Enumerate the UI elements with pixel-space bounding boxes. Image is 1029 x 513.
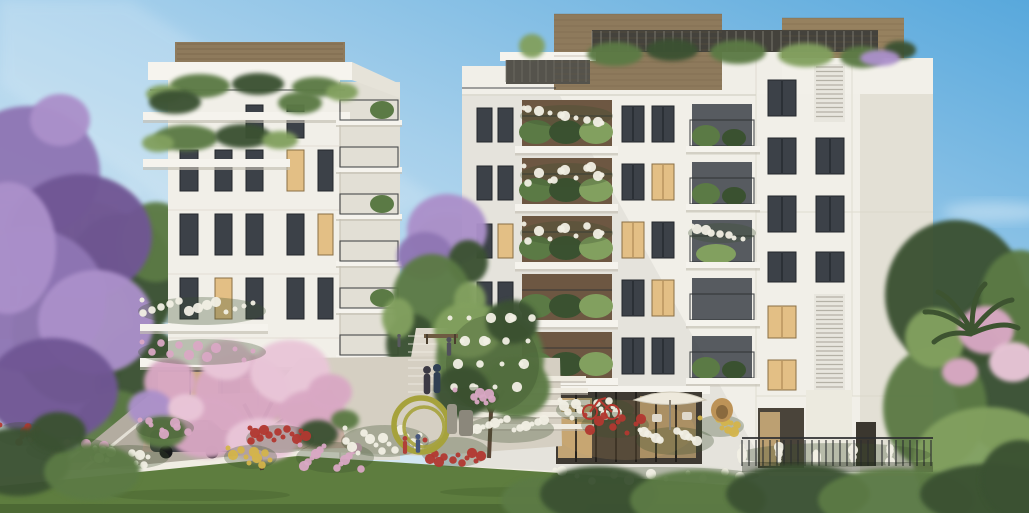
balcony-plant bbox=[579, 294, 613, 318]
tree-canopy bbox=[149, 90, 201, 114]
flower bbox=[391, 446, 399, 454]
flower bbox=[698, 416, 703, 421]
tree-canopy bbox=[646, 39, 698, 61]
flower bbox=[609, 423, 617, 431]
balcony-slab bbox=[686, 146, 760, 152]
window bbox=[498, 224, 513, 258]
flower bbox=[564, 408, 572, 416]
flower bbox=[600, 121, 605, 126]
window bbox=[318, 214, 333, 255]
flower bbox=[423, 438, 428, 443]
balcony-slab bbox=[515, 204, 618, 211]
flower bbox=[526, 339, 531, 344]
tree-canopy bbox=[587, 42, 643, 66]
left-building-pergola-wood bbox=[175, 42, 345, 64]
balcony-plant bbox=[722, 361, 746, 379]
flower bbox=[237, 446, 245, 454]
flower bbox=[298, 443, 303, 448]
flower bbox=[211, 297, 221, 307]
lawn-streak bbox=[110, 489, 290, 501]
flower bbox=[586, 162, 596, 172]
flower bbox=[512, 382, 522, 392]
side-balcony-slab-shadow bbox=[336, 172, 402, 174]
flower bbox=[261, 449, 269, 457]
flower bbox=[378, 433, 388, 443]
flower bbox=[574, 176, 579, 181]
flower bbox=[583, 116, 591, 124]
flower bbox=[378, 447, 386, 455]
flower bbox=[343, 426, 348, 431]
flower bbox=[357, 465, 365, 473]
flower bbox=[202, 300, 212, 310]
window bbox=[318, 150, 333, 191]
flower bbox=[553, 468, 558, 473]
flower bbox=[256, 434, 264, 442]
tree-canopy bbox=[326, 83, 358, 101]
flower bbox=[814, 450, 819, 455]
flower bbox=[550, 176, 558, 184]
flower bbox=[247, 437, 255, 445]
flower bbox=[274, 428, 282, 436]
patio-chair bbox=[652, 414, 662, 422]
tree-canopy bbox=[778, 43, 834, 67]
balcony-slab bbox=[686, 204, 760, 210]
flower bbox=[625, 431, 630, 436]
side-balcony-slab-shadow bbox=[336, 125, 402, 127]
person-body bbox=[397, 338, 400, 348]
flower bbox=[574, 116, 579, 121]
flower bbox=[849, 453, 857, 461]
flower bbox=[458, 459, 466, 467]
flower bbox=[193, 303, 203, 313]
flower bbox=[265, 431, 273, 439]
flower bbox=[251, 301, 256, 306]
flower bbox=[233, 347, 238, 352]
tree-canopy bbox=[232, 73, 284, 95]
flower bbox=[224, 310, 229, 315]
flower bbox=[741, 237, 746, 242]
balcony-plant bbox=[692, 183, 720, 205]
balcony-plant bbox=[722, 187, 746, 205]
window bbox=[215, 150, 232, 191]
flower bbox=[160, 428, 165, 433]
flower bbox=[184, 350, 194, 360]
flower bbox=[548, 237, 553, 242]
flower bbox=[486, 313, 496, 323]
flower bbox=[512, 428, 517, 433]
side-balcony-slab bbox=[336, 214, 402, 219]
balcony-slab bbox=[515, 262, 618, 269]
flower bbox=[605, 397, 613, 405]
flower bbox=[157, 303, 165, 311]
flower bbox=[886, 447, 894, 455]
flower bbox=[272, 438, 277, 443]
louver-panel bbox=[814, 64, 845, 122]
flower bbox=[560, 111, 570, 121]
flower bbox=[140, 340, 145, 345]
balcony-slab bbox=[686, 378, 760, 384]
flower bbox=[560, 223, 570, 233]
flower bbox=[519, 362, 524, 367]
tree-canopy bbox=[30, 94, 90, 146]
window bbox=[477, 166, 492, 200]
flower bbox=[166, 350, 174, 358]
flower bbox=[732, 236, 737, 241]
balcony-slab-shadow bbox=[515, 269, 618, 272]
balcony-plant bbox=[692, 125, 720, 147]
flower bbox=[283, 425, 291, 433]
flower bbox=[524, 179, 532, 187]
balcony-slab-shadow bbox=[515, 153, 618, 156]
flower bbox=[600, 231, 605, 236]
flower bbox=[548, 111, 553, 116]
flower bbox=[242, 304, 247, 309]
flower bbox=[242, 358, 247, 363]
balcony-door-glass bbox=[692, 278, 752, 320]
flower bbox=[440, 453, 448, 461]
tree-canopy bbox=[519, 34, 545, 58]
flower bbox=[166, 300, 174, 308]
balcony-plant bbox=[370, 101, 394, 119]
flower bbox=[453, 359, 463, 369]
balcony-slab-shadow bbox=[143, 167, 290, 170]
flower bbox=[600, 173, 605, 178]
window bbox=[287, 214, 304, 255]
flower bbox=[692, 224, 702, 234]
window bbox=[287, 278, 304, 319]
side-balcony-slab-shadow bbox=[336, 219, 402, 221]
flower bbox=[522, 222, 527, 227]
flower bbox=[148, 348, 156, 356]
flower bbox=[528, 314, 536, 322]
flower bbox=[524, 237, 532, 245]
flower bbox=[505, 313, 515, 323]
window bbox=[498, 108, 513, 142]
flower bbox=[342, 437, 350, 445]
balcony-plant bbox=[549, 294, 583, 318]
person-head bbox=[446, 337, 451, 342]
flower bbox=[585, 425, 595, 435]
planter-pot bbox=[459, 410, 473, 436]
person-head bbox=[415, 434, 420, 439]
flower bbox=[460, 339, 465, 344]
flower bbox=[616, 420, 621, 425]
flower bbox=[249, 447, 259, 457]
flower bbox=[493, 385, 498, 390]
window bbox=[215, 214, 232, 255]
person-body bbox=[416, 439, 420, 453]
flower bbox=[301, 431, 311, 441]
balcony-slab-shadow bbox=[686, 210, 760, 213]
flower bbox=[140, 461, 148, 469]
flower bbox=[570, 416, 575, 421]
flower bbox=[456, 453, 461, 458]
balcony-plant bbox=[370, 195, 394, 213]
person-body bbox=[447, 342, 451, 356]
architectural-rendering bbox=[0, 0, 1029, 513]
flower bbox=[258, 461, 266, 469]
flower bbox=[534, 168, 544, 178]
window bbox=[180, 214, 198, 255]
flower bbox=[534, 106, 544, 116]
flower bbox=[574, 234, 579, 239]
flower bbox=[247, 461, 252, 466]
flower bbox=[268, 458, 273, 463]
balcony-plant bbox=[692, 357, 720, 379]
flower bbox=[244, 455, 249, 460]
flower bbox=[157, 339, 165, 347]
flower bbox=[534, 418, 542, 426]
flower bbox=[448, 316, 453, 321]
flower bbox=[524, 105, 532, 113]
flower bbox=[692, 436, 702, 446]
person-head bbox=[403, 436, 408, 441]
flower bbox=[184, 428, 192, 436]
flower bbox=[145, 417, 153, 425]
balcony-slab-shadow bbox=[686, 326, 760, 329]
flower bbox=[228, 450, 238, 460]
balcony-slab bbox=[686, 262, 760, 268]
tree-canopy bbox=[44, 444, 140, 500]
window bbox=[246, 214, 263, 255]
flower bbox=[453, 388, 458, 393]
flower bbox=[485, 421, 493, 429]
flower bbox=[707, 229, 715, 237]
flower bbox=[476, 451, 486, 461]
person-head bbox=[423, 366, 431, 374]
balcony-slab-shadow bbox=[515, 211, 618, 214]
flower bbox=[211, 343, 221, 353]
flower bbox=[534, 226, 544, 236]
flower bbox=[449, 456, 457, 464]
flower bbox=[356, 451, 361, 456]
side-balcony-slab bbox=[336, 261, 402, 266]
window bbox=[246, 150, 263, 191]
flower bbox=[135, 450, 145, 460]
flower bbox=[281, 435, 286, 440]
balcony-slab-shadow bbox=[686, 152, 760, 155]
flower bbox=[387, 442, 392, 447]
flower bbox=[716, 230, 724, 238]
flower bbox=[516, 424, 524, 432]
hanging-wicker-chair-seat bbox=[716, 405, 728, 419]
balcony-slab bbox=[515, 146, 618, 153]
flower bbox=[233, 307, 238, 312]
flower bbox=[636, 414, 646, 424]
flower bbox=[374, 443, 379, 448]
flower bbox=[724, 426, 732, 434]
window bbox=[498, 166, 513, 200]
flower bbox=[175, 297, 183, 305]
flower bbox=[184, 306, 194, 316]
balcony-slab-shadow bbox=[143, 120, 350, 123]
flower bbox=[479, 336, 489, 346]
tree-canopy bbox=[262, 131, 298, 149]
flower bbox=[251, 349, 256, 354]
side-balcony-slab bbox=[336, 167, 402, 172]
right-building-side-balconies bbox=[686, 104, 760, 387]
flower bbox=[148, 306, 156, 314]
window bbox=[180, 150, 198, 191]
person-head bbox=[433, 364, 441, 372]
flower bbox=[560, 165, 570, 175]
person-head bbox=[397, 334, 401, 338]
balcony-slab bbox=[686, 320, 760, 326]
patio-chair bbox=[682, 412, 692, 420]
flower bbox=[193, 341, 203, 351]
flower bbox=[851, 444, 856, 449]
flower bbox=[202, 352, 212, 362]
planter-pot bbox=[447, 404, 457, 434]
balcony-slab-shadow bbox=[140, 331, 268, 334]
side-balcony-slab-shadow bbox=[336, 266, 402, 268]
flower bbox=[170, 418, 180, 428]
tree-canopy bbox=[382, 298, 414, 338]
flower bbox=[470, 393, 478, 401]
person-body bbox=[403, 441, 407, 454]
balcony-plant bbox=[579, 352, 613, 376]
flower bbox=[656, 436, 664, 444]
person-body bbox=[424, 374, 431, 394]
tree-canopy bbox=[278, 92, 322, 114]
tree-canopy bbox=[308, 374, 352, 410]
window bbox=[477, 108, 492, 142]
flower bbox=[583, 222, 591, 230]
balcony-slab bbox=[140, 324, 268, 331]
tree-canopy bbox=[215, 124, 271, 148]
tree-canopy bbox=[142, 134, 174, 152]
tree-canopy bbox=[942, 358, 978, 386]
flower bbox=[503, 415, 511, 423]
flower bbox=[226, 446, 231, 451]
flower bbox=[476, 360, 484, 368]
balcony-slab-shadow bbox=[686, 268, 760, 271]
flower bbox=[502, 337, 510, 345]
balcony-plant bbox=[696, 244, 736, 264]
balcony-plant bbox=[722, 129, 746, 147]
flower bbox=[140, 298, 145, 303]
tree-canopy bbox=[860, 50, 900, 66]
flower bbox=[138, 418, 143, 423]
tree-canopy bbox=[30, 412, 86, 452]
flower bbox=[322, 444, 327, 449]
flower bbox=[360, 429, 368, 437]
flower bbox=[467, 316, 472, 321]
flower bbox=[146, 455, 151, 460]
tree-canopy bbox=[710, 40, 766, 64]
flower bbox=[720, 426, 725, 431]
flower bbox=[175, 341, 183, 349]
flower bbox=[522, 164, 527, 169]
flower bbox=[139, 309, 147, 317]
scene-canvas bbox=[0, 0, 1029, 513]
balcony-slab bbox=[143, 159, 290, 167]
flower bbox=[467, 448, 477, 458]
window bbox=[318, 278, 333, 319]
flower bbox=[500, 362, 505, 367]
window bbox=[287, 150, 304, 191]
side-balcony-slab bbox=[336, 120, 402, 125]
person-body bbox=[434, 372, 441, 393]
